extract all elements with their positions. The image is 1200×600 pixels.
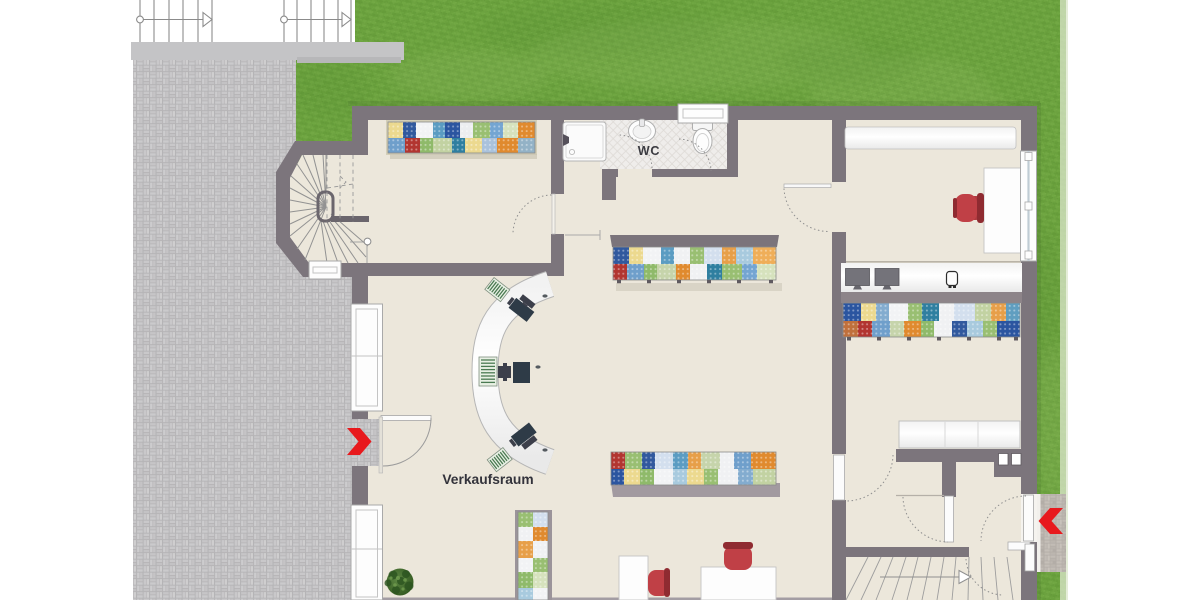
- svg-text:WC: WC: [638, 144, 661, 158]
- svg-text:Verkaufsraum: Verkaufsraum: [442, 472, 533, 487]
